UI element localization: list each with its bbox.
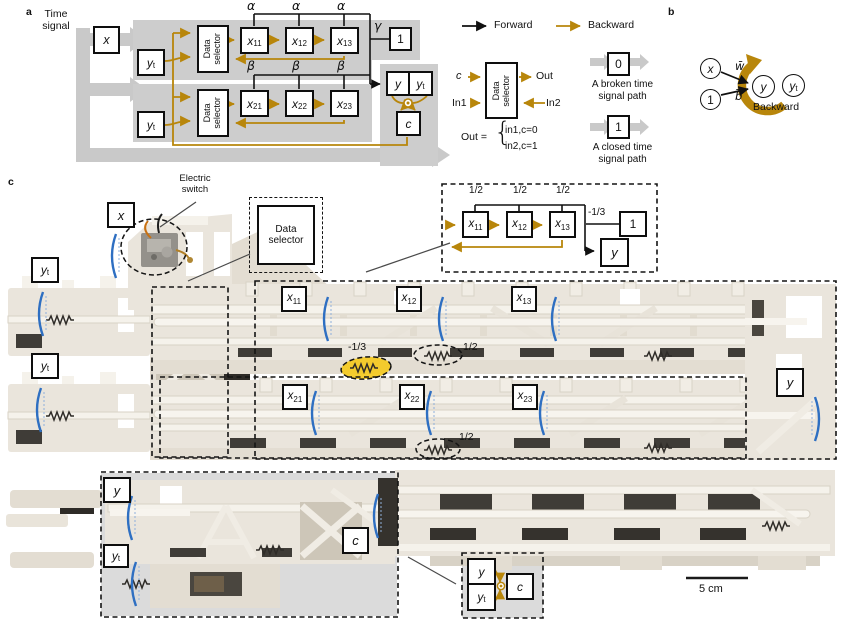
gain-half-label-1: 1/2 xyxy=(463,341,478,353)
data-selector-callout: Dataselector xyxy=(249,197,323,273)
machine-label-yt-bottom: yt xyxy=(103,544,129,568)
row1-assembly xyxy=(150,282,836,374)
legend-in1: In1 xyxy=(452,97,467,109)
closed-path-box: 1 xyxy=(615,121,622,133)
inset-neg-third: -1/3 xyxy=(588,207,605,219)
inset-half-1: 1/2 xyxy=(464,185,488,197)
label-x11: x11 xyxy=(240,27,269,54)
label-yt-out: yt xyxy=(408,71,433,96)
left-weight-module-2 xyxy=(8,372,150,452)
legend-case1: in2,c=1 xyxy=(505,141,538,153)
inset2-label-y: y xyxy=(467,558,496,585)
label-yt-1: yt xyxy=(137,49,165,76)
machine-label-x12: x12 xyxy=(396,286,422,312)
legend-in2: In2 xyxy=(546,97,561,109)
node-y: y xyxy=(752,75,775,98)
data-selector-box-1: Dataselector xyxy=(197,25,229,73)
broken-path-label: A broken timesignal path xyxy=(575,79,670,102)
scale-bar-label: 5 cm xyxy=(699,583,723,596)
bias-label: b̄ xyxy=(735,90,742,103)
machine-label-yt-2: yt xyxy=(31,353,59,379)
beta-2: β xyxy=(292,59,300,73)
machine-label-x22: x22 xyxy=(399,384,425,410)
inset2-node-icon xyxy=(497,582,504,589)
label-one: 1 xyxy=(397,33,404,45)
label-x22: x22 xyxy=(285,90,314,117)
legend-out: Out xyxy=(536,70,553,82)
row2-assembly xyxy=(150,378,836,460)
alpha-1: α xyxy=(247,0,255,13)
machine-label-c: c xyxy=(342,527,369,554)
machine-label-y-bottom: y xyxy=(103,477,131,503)
inset-label-y: y xyxy=(600,238,629,267)
data-selector-legend-box: Dataselector xyxy=(485,62,518,119)
inset2-label-c: c xyxy=(506,573,534,600)
label-x12: x12 xyxy=(285,27,314,54)
inset-label-one: 1 xyxy=(630,218,637,230)
alpha-3: α xyxy=(337,0,345,13)
label-x23: x23 xyxy=(330,90,359,117)
electric-switch-label: Electricswitch xyxy=(167,174,223,196)
node-one: 1 xyxy=(707,94,714,106)
machine-photo xyxy=(6,214,836,618)
legend-case0: in1,c=0 xyxy=(505,125,538,137)
legend-c: c xyxy=(456,70,462,83)
beta-3: β xyxy=(337,59,345,73)
time-signal-label: Timesignal xyxy=(34,8,78,32)
hadamard-node-icon xyxy=(404,99,412,107)
label-c-out: c xyxy=(396,111,421,136)
alpha-2: α xyxy=(292,0,300,13)
data-selector-box-2: Dataselector xyxy=(197,89,229,137)
forward-legend-label: Forward xyxy=(494,19,533,31)
label-x21: x21 xyxy=(240,90,269,117)
machine-label-y: y xyxy=(776,368,804,397)
closed-path-label: A closed timesignal path xyxy=(575,142,670,165)
machine-label-yt-1: yt xyxy=(31,257,59,283)
legend-arrows xyxy=(462,26,580,103)
inset2-label-yt: yt xyxy=(467,583,496,611)
inset-half-3: 1/2 xyxy=(551,185,575,197)
label-yt-2: yt xyxy=(137,111,165,138)
panel-c-letter: c xyxy=(8,176,14,188)
label-y-out: y xyxy=(386,71,410,96)
figure-canvas: a b c Timesignal x yt yt Dataselector Da… xyxy=(0,0,865,633)
machine-label-x13: x13 xyxy=(511,286,537,312)
gain-neg-third-label: -1/3 xyxy=(348,341,366,353)
machine-label-x: x xyxy=(107,202,135,228)
machine-label-x23: x23 xyxy=(512,384,538,410)
machine-label-x11: x11 xyxy=(281,286,307,312)
backward-loop-label: Backward xyxy=(753,101,799,113)
machine-label-x21: x21 xyxy=(282,384,308,410)
broken-path-box: 0 xyxy=(615,58,622,70)
legend-out-eq: Out = xyxy=(461,131,487,143)
node-yt: yt xyxy=(782,74,805,97)
backward-legend-label: Backward xyxy=(588,19,634,31)
inset-label-x13: x13 xyxy=(549,211,576,238)
label-x13: x13 xyxy=(330,27,359,54)
inset-label-x11: x11 xyxy=(462,211,489,238)
label-x-input: x xyxy=(93,26,120,54)
inset-label-x12: x12 xyxy=(506,211,533,238)
panel-b-letter: b xyxy=(668,6,674,18)
gain-half-label-2: 1/2 xyxy=(459,431,474,443)
inset-half-2: 1/2 xyxy=(508,185,532,197)
gamma: γ xyxy=(374,19,381,33)
panel-a-letter: a xyxy=(26,6,32,18)
beta-1: β xyxy=(247,59,255,73)
weight-label: w̄ xyxy=(735,60,744,73)
node-x: x xyxy=(700,58,721,79)
